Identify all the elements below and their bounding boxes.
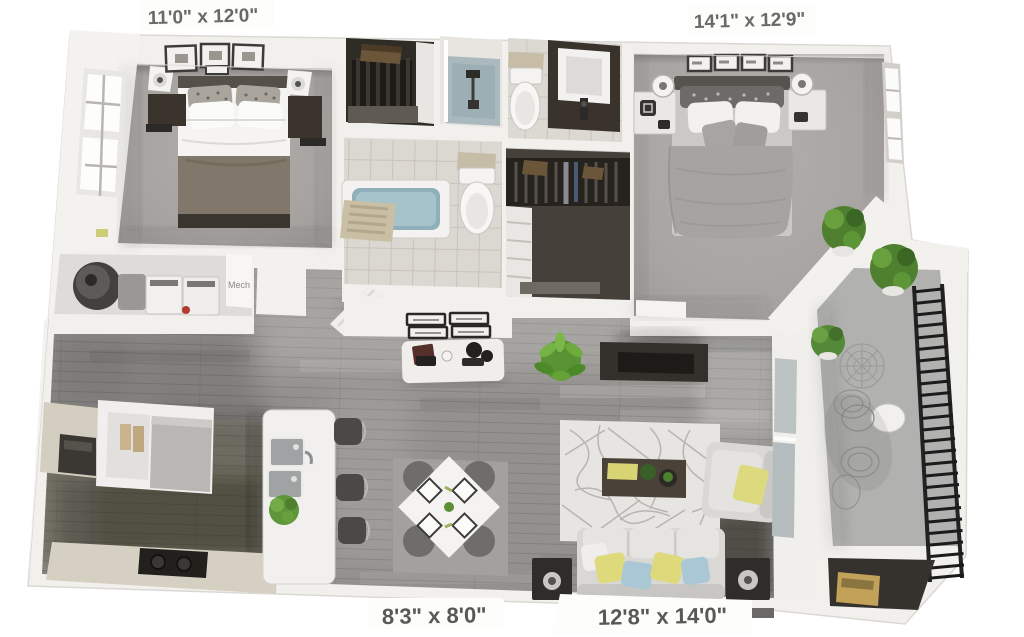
svg-text:Mech: Mech [228, 280, 250, 290]
svg-text:14'1" x 12'9": 14'1" x 12'9" [694, 9, 806, 33]
svg-text:11'0" x 12'0": 11'0" x 12'0" [148, 5, 259, 29]
svg-text:8'3" x 8'0": 8'3" x 8'0" [382, 602, 487, 629]
svg-text:12'8" x 14'0": 12'8" x 14'0" [598, 603, 728, 630]
